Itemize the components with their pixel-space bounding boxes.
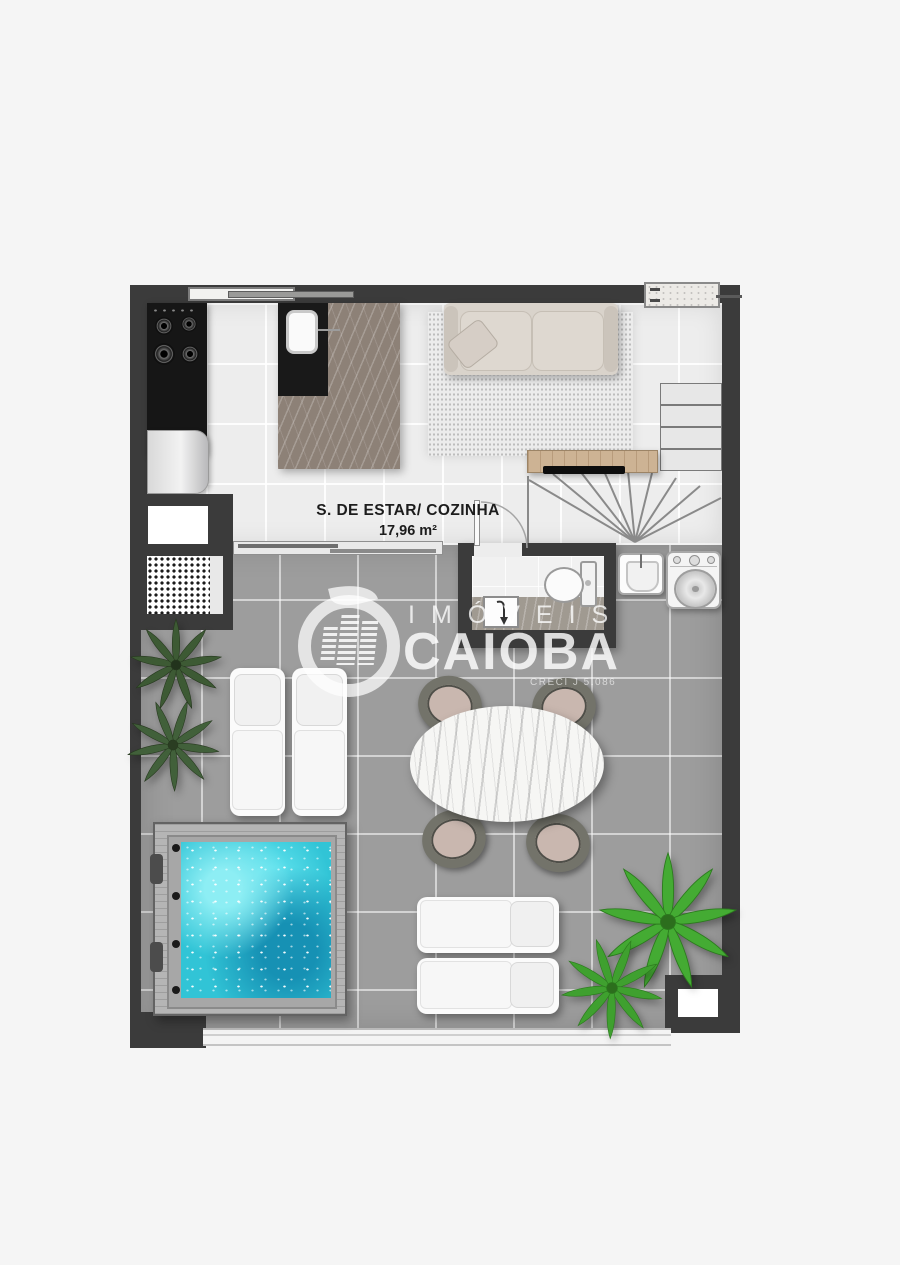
plant-icon	[123, 695, 223, 795]
cooktop-icon	[181, 316, 197, 332]
kitchen-island	[278, 303, 400, 469]
cooktop-knobs-icon	[151, 307, 199, 314]
shelf-icon	[644, 282, 720, 308]
shaft-opening	[148, 506, 208, 544]
cooktop-icon	[181, 345, 199, 363]
washing-machine-icon	[666, 551, 721, 609]
shelf-bracket-icon	[650, 288, 660, 291]
service-shaft-block	[130, 494, 233, 630]
palm-plant-icon	[557, 933, 667, 1043]
laundry-tank-icon	[618, 553, 664, 595]
sliding-door-icon	[233, 541, 443, 555]
toilet-icon	[544, 567, 584, 603]
sliding-window-pane	[228, 291, 354, 298]
room-label: S. DE ESTAR/ COZINHA	[248, 502, 568, 520]
staircase-icon	[660, 383, 722, 471]
island-sink-icon	[286, 310, 318, 354]
sofa-icon	[444, 303, 618, 375]
sofa-armrest	[604, 306, 618, 372]
dining-table-icon	[410, 706, 604, 822]
sofa-cushion	[532, 311, 604, 371]
sun-lounger-icon	[292, 668, 347, 816]
floorplan-canvas: IMÓVEIS CAIOBA CRECI J 5.086 S. DE ESTAR…	[0, 0, 900, 1265]
sun-lounger-icon	[417, 897, 559, 953]
toilet-flush-icon	[585, 580, 591, 586]
hot-tub-water	[181, 842, 331, 998]
shelf-bracket-icon	[650, 299, 660, 302]
cooktop-icon	[155, 317, 173, 335]
shaft-ledge	[210, 556, 223, 614]
faucet-icon	[494, 599, 508, 627]
ventilation-grille-icon	[147, 556, 210, 614]
door-pane	[238, 544, 338, 548]
tv-icon	[543, 466, 625, 474]
room-area-label: 17,96 m²	[248, 523, 568, 539]
refrigerator-icon	[147, 430, 209, 494]
sun-lounger-icon	[417, 958, 559, 1014]
sun-lounger-icon	[230, 668, 285, 816]
shelf-rod	[716, 295, 742, 298]
cooktop-icon	[153, 343, 175, 365]
door-pane	[330, 549, 436, 553]
hot-tub-icon	[153, 822, 347, 1016]
faucet-icon	[318, 329, 340, 331]
wall-bottom-left-corner	[130, 1012, 206, 1048]
